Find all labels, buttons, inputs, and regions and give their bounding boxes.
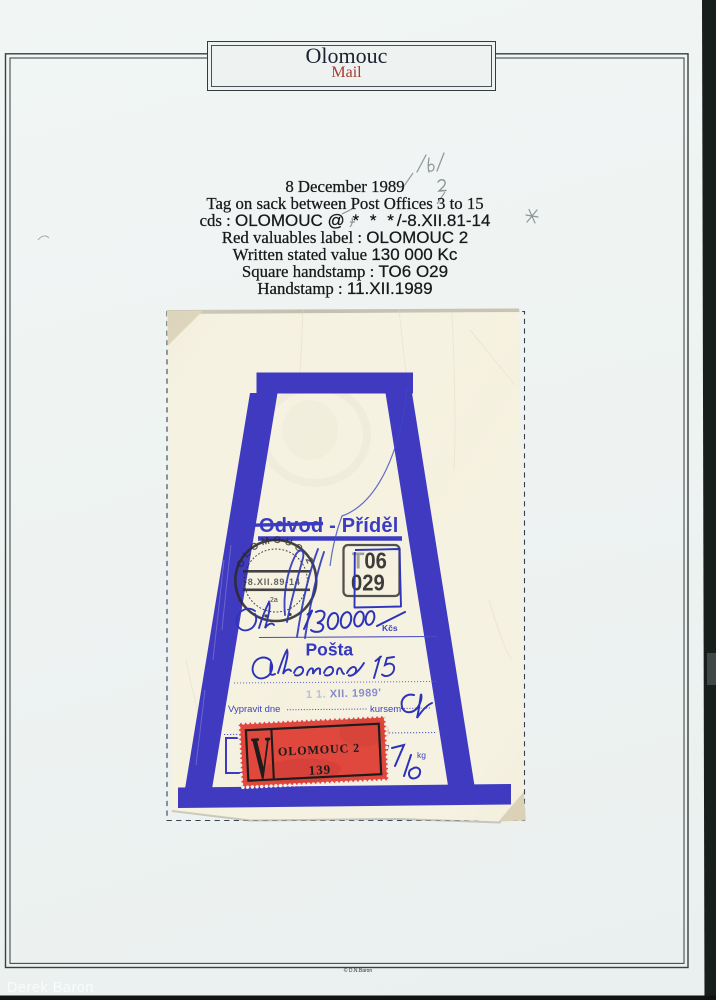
svg-text:Kčs: Kčs [382, 623, 398, 633]
svg-text:029: 029 [351, 569, 385, 596]
svg-text:1 1. XII. 1989': 1 1. XII. 1989' [306, 687, 382, 701]
svg-text:Vypravit dne: Vypravit dne [228, 704, 280, 715]
svg-text:-8.XII.89-14: -8.XII.89-14 [244, 577, 301, 587]
svg-text:2a: 2a [270, 597, 278, 604]
svg-text:kursem: kursem [370, 704, 401, 715]
svg-text:Pošta: Pošta [306, 640, 354, 660]
svg-text:139: 139 [308, 762, 331, 778]
svg-text:kg: kg [417, 750, 426, 760]
svg-text:V: V [250, 725, 273, 793]
